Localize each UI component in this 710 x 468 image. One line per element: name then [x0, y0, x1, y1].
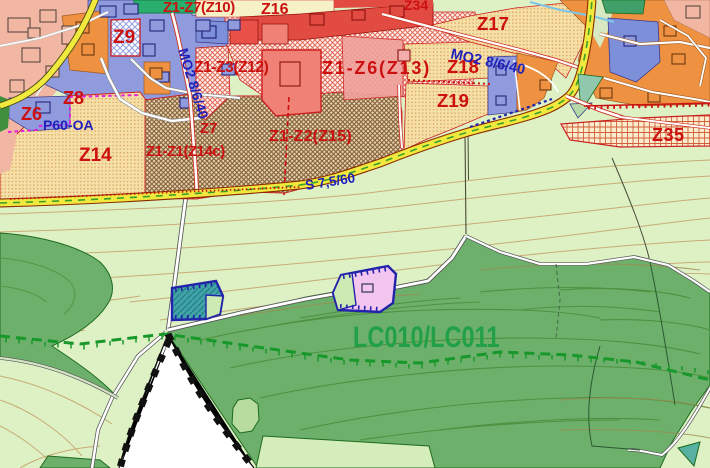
svg-text:Z1-Z7(Z10): Z1-Z7(Z10)	[163, 0, 235, 16]
svg-text:Z1-Z3(Z12): Z1-Z3(Z12)	[194, 59, 269, 76]
svg-text:Z34: Z34	[404, 0, 428, 13]
svg-text:Z1-Z2(Z15): Z1-Z2(Z15)	[269, 128, 352, 145]
svg-text:Z1-Z1(Z14c): Z1-Z1(Z14c)	[146, 143, 225, 160]
svg-text:Z19: Z19	[437, 90, 469, 111]
svg-text:Z9: Z9	[113, 27, 135, 48]
svg-text:Z16: Z16	[261, 1, 289, 18]
svg-text:Z35: Z35	[652, 125, 685, 145]
svg-text:Z6: Z6	[21, 104, 42, 124]
svg-text:P60-OA: P60-OA	[43, 117, 94, 133]
svg-text:Z1-Z6(Z13): Z1-Z6(Z13)	[322, 58, 431, 78]
svg-text:Z14: Z14	[79, 145, 112, 166]
svg-text:Z17: Z17	[477, 13, 509, 34]
svg-text:LC010/LC011: LC010/LC011	[353, 320, 500, 353]
svg-text:Z7: Z7	[200, 120, 218, 137]
svg-text:Z8: Z8	[63, 88, 84, 108]
